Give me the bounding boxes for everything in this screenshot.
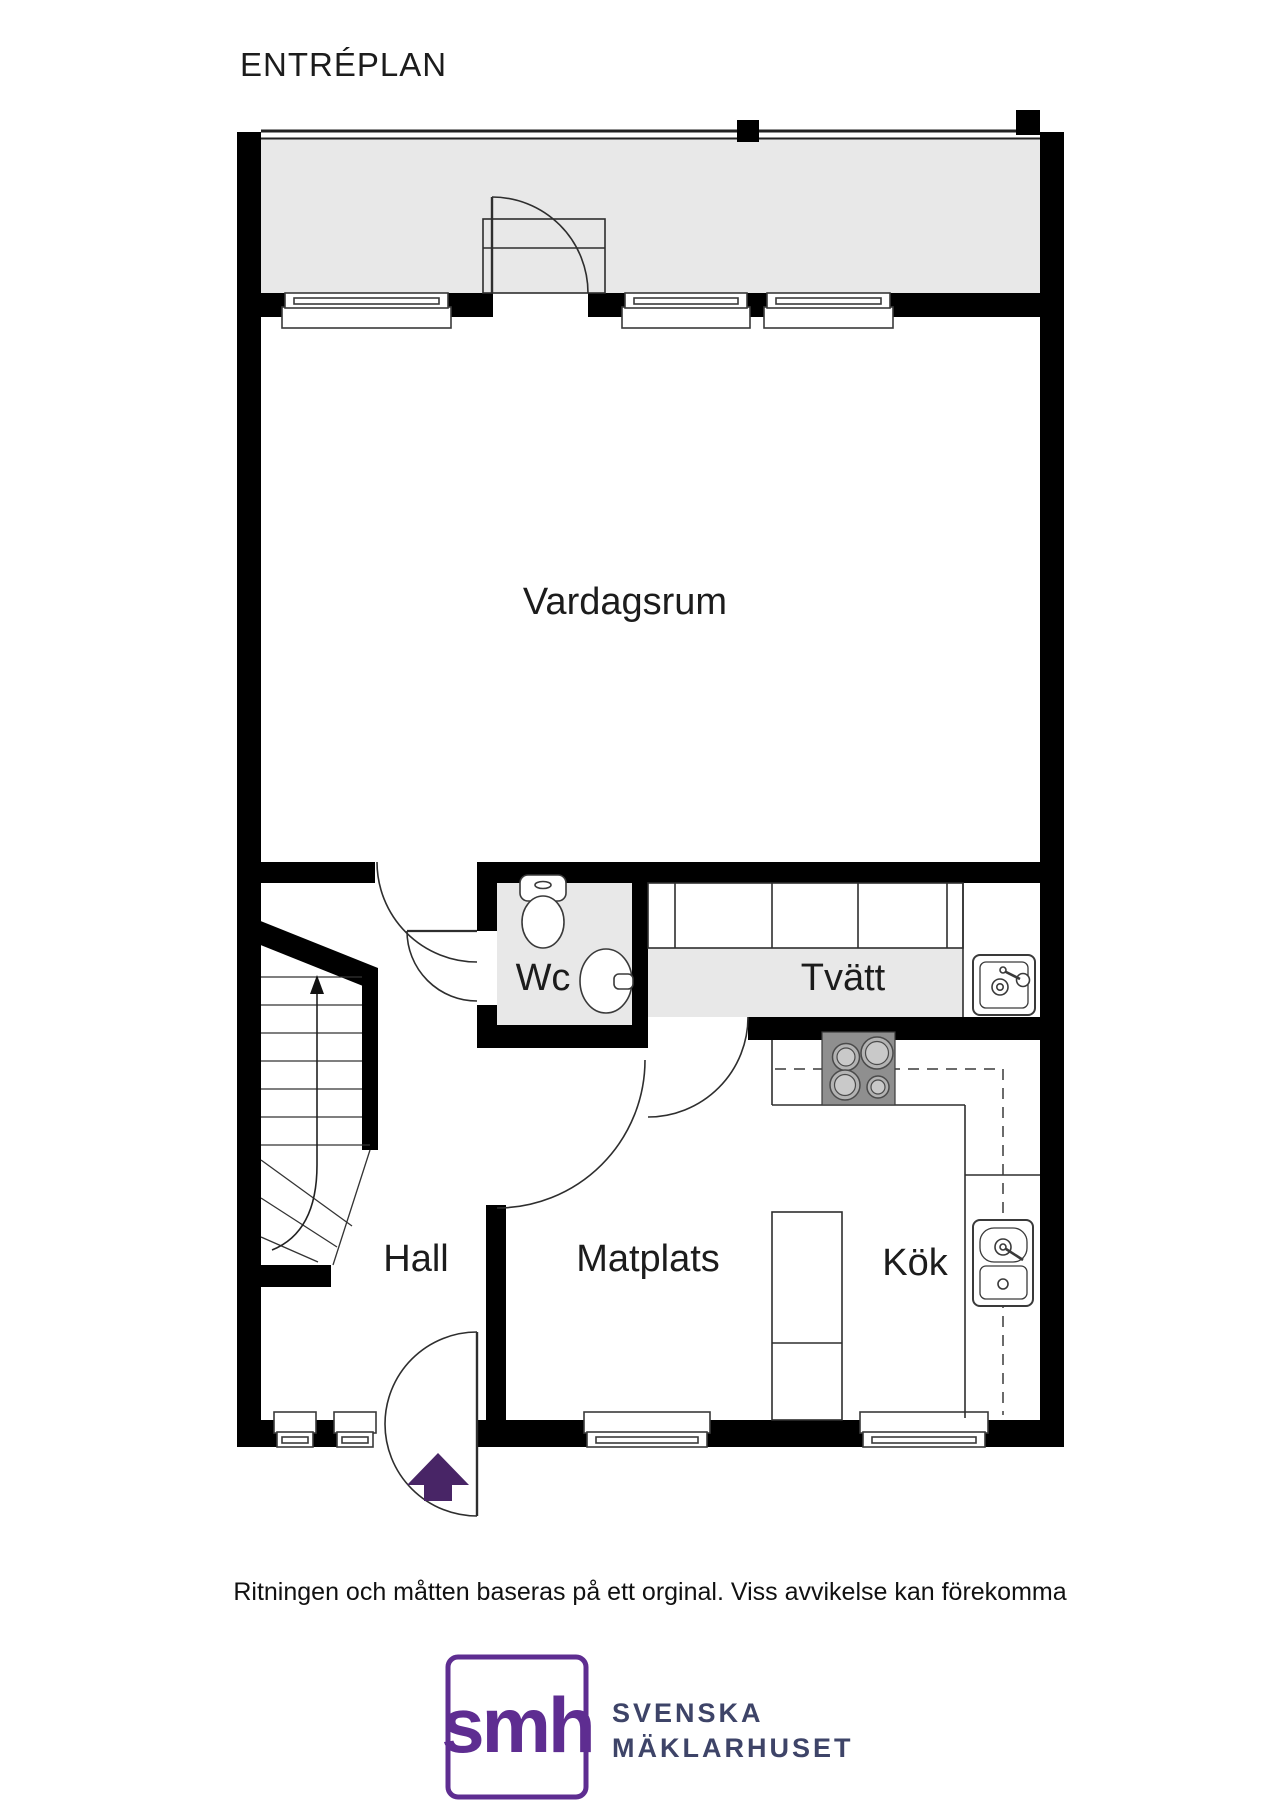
left-exterior-wall [237,132,261,1447]
entrance-door [385,1332,477,1516]
livingroom-hall-door-arc [377,862,477,962]
north-windows [282,293,893,328]
hall-dining-wall [486,1205,506,1447]
stairs-up-arrow-icon [310,975,324,994]
balcony-railing [261,110,1040,142]
room-labels: Vardagsrum Wc Tvätt Hall Matplats Kök [383,581,948,1284]
label-hall: Hall [383,1238,448,1280]
balcony-floor [261,139,1040,293]
window [584,1412,710,1447]
smh-logo-monogram: smh [441,1681,592,1769]
window [622,293,750,328]
right-exterior-wall [1040,132,1064,1447]
laundry-sink-icon [973,955,1035,1015]
kitchen-sink-icon [973,1220,1033,1306]
window [282,293,451,328]
window [274,1412,316,1447]
laundry-door-arc [648,1017,748,1117]
stair-bottom-wall [261,1265,331,1287]
stairs-walking-line [272,975,324,1250]
wc-sink-icon [580,949,633,1013]
logo-line2: MÄKLARHUSET [612,1733,854,1763]
label-wc: Wc [516,957,571,999]
floorplan-drawing: Vardagsrum Wc Tvätt Hall Matplats Kök EN… [0,0,1280,1811]
label-matplats: Matplats [576,1238,720,1280]
hall-dining-door-arc [497,1060,645,1208]
smh-logo: smh SVENSKA MÄKLARHUSET [441,1657,853,1797]
dining-island [772,1212,842,1420]
disclaimer-text: Ritningen och måtten baseras på ett orgi… [233,1578,1066,1606]
window [860,1412,988,1447]
label-kok: Kök [882,1242,948,1284]
label-vardagsrum: Vardagsrum [523,581,727,623]
label-tvatt: Tvätt [801,957,886,999]
south-windows [274,1412,988,1447]
toilet-icon [520,875,566,948]
floorplan-page: Vardagsrum Wc Tvätt Hall Matplats Kök EN… [0,0,1280,1811]
wc-laundry-divider [632,883,648,1025]
railing-post [737,120,759,142]
logo-line1: SVENSKA [612,1698,764,1728]
window [334,1412,376,1447]
wc-south-wall [477,1025,648,1048]
stairs [261,975,370,1265]
stair-diagonal-wall [248,916,378,992]
window [764,293,893,328]
page-title: ENTRÉPLAN [240,46,447,83]
stair-side-wall [362,968,378,1150]
stove-icon [822,1032,895,1105]
railing-corner-post [1016,110,1040,135]
